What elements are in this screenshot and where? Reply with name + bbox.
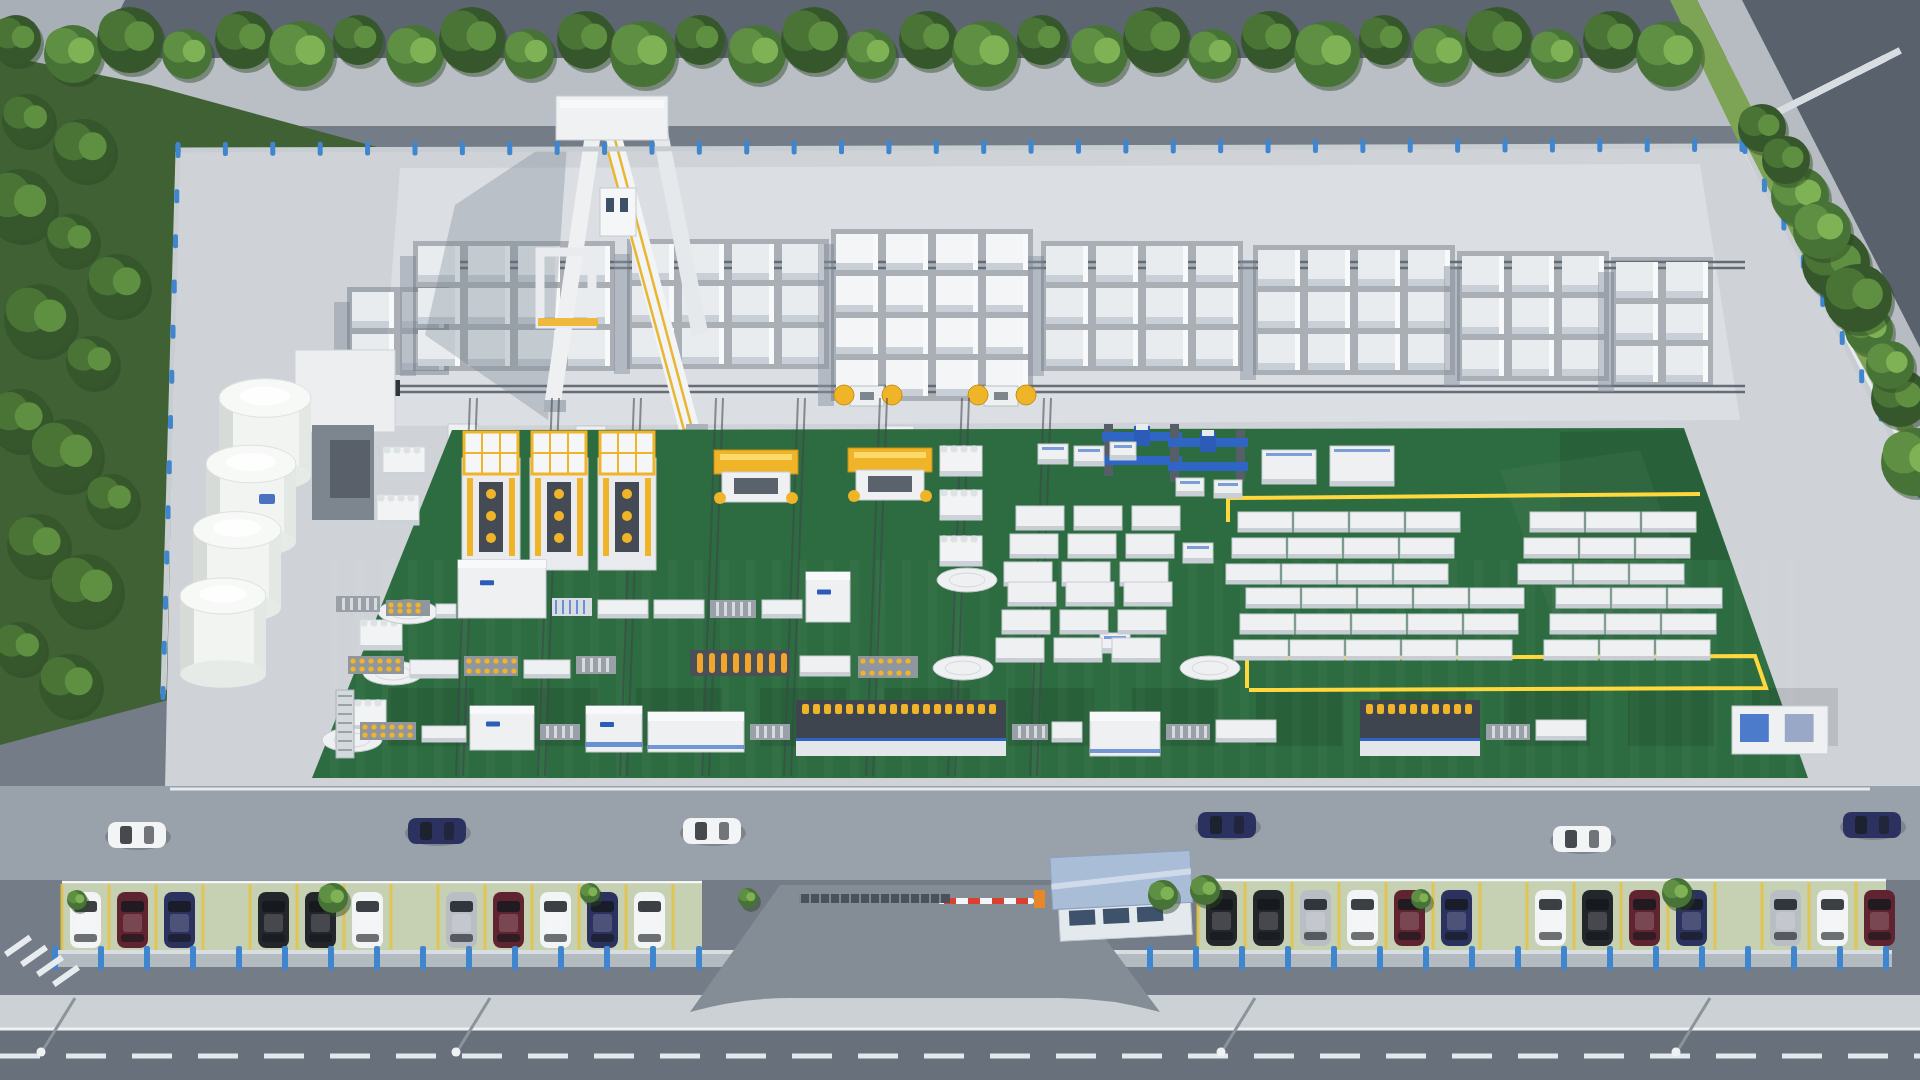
blue-stripe bbox=[1078, 449, 1100, 452]
aerated-cake bbox=[940, 490, 982, 521]
tree-canopy bbox=[239, 23, 265, 49]
arm-joint bbox=[848, 490, 860, 502]
tree-canopy bbox=[1663, 35, 1693, 65]
fence-post bbox=[1840, 331, 1845, 345]
fence-post bbox=[744, 141, 749, 155]
tree-canopy bbox=[466, 21, 496, 51]
car-glass bbox=[1565, 830, 1577, 848]
tree-canopy bbox=[1607, 23, 1633, 49]
roller-dot bbox=[887, 670, 892, 675]
roller-dot bbox=[371, 724, 376, 729]
parked-car bbox=[1629, 890, 1660, 946]
fence-post bbox=[144, 946, 150, 970]
cake-texture bbox=[941, 490, 948, 497]
arm-joint bbox=[920, 490, 932, 502]
block-pack-base bbox=[782, 315, 824, 322]
fence-post bbox=[172, 280, 177, 294]
car-windshield bbox=[121, 901, 144, 912]
top-roller bbox=[1410, 704, 1417, 714]
mould-box-base bbox=[1408, 630, 1462, 634]
parked-car bbox=[540, 892, 571, 948]
cake-texture bbox=[951, 446, 958, 453]
mould-box-base bbox=[1394, 580, 1448, 584]
roller-dot bbox=[407, 732, 412, 737]
fence-post bbox=[173, 234, 178, 248]
parked-car bbox=[1582, 890, 1613, 946]
mould-box-base bbox=[1338, 580, 1392, 584]
mould-box-base bbox=[1586, 528, 1640, 532]
block-pack-edge bbox=[1499, 340, 1504, 376]
lower-band bbox=[796, 740, 1006, 756]
roller-dot bbox=[475, 658, 480, 663]
tree-canopy bbox=[33, 527, 61, 555]
car-windshield bbox=[1539, 899, 1562, 910]
mould-box-base bbox=[1464, 630, 1518, 634]
cake-texture bbox=[388, 495, 395, 502]
roller-dot bbox=[493, 668, 498, 673]
fence-post bbox=[1883, 946, 1889, 970]
coil bbox=[757, 653, 763, 673]
parked-car bbox=[1535, 890, 1566, 946]
mould-box-base bbox=[1518, 580, 1572, 584]
block-pack-base bbox=[1146, 275, 1188, 282]
car-glass bbox=[144, 826, 154, 844]
block-pack-base bbox=[986, 305, 1028, 312]
fence-post bbox=[1423, 946, 1429, 970]
tree-canopy bbox=[1321, 35, 1351, 65]
silo-logo-mark bbox=[259, 494, 275, 504]
tree-canopy bbox=[75, 894, 84, 903]
tree-canopy bbox=[295, 35, 325, 65]
roller-dot bbox=[389, 732, 394, 737]
car-windshield bbox=[638, 901, 661, 912]
tree-canopy bbox=[88, 347, 111, 370]
tree-canopy bbox=[1852, 279, 1883, 310]
fence-post bbox=[1561, 946, 1567, 970]
tree-canopy bbox=[410, 37, 436, 63]
mould-box-base bbox=[1358, 604, 1412, 608]
table-base bbox=[654, 614, 704, 618]
tree-canopy bbox=[1674, 884, 1688, 898]
cutter-roll bbox=[486, 511, 496, 521]
roller bbox=[1524, 726, 1527, 738]
blue-panel bbox=[1740, 714, 1769, 742]
block-pack-edge bbox=[973, 318, 978, 354]
fence-post bbox=[602, 141, 607, 155]
conveyor-coilbank bbox=[690, 650, 790, 676]
roller bbox=[1180, 726, 1183, 738]
mould-box-base bbox=[1126, 554, 1174, 558]
cake-texture bbox=[941, 446, 948, 453]
block-pack-edge bbox=[1183, 288, 1188, 324]
table-base bbox=[1038, 459, 1068, 464]
roller-dot bbox=[475, 668, 480, 673]
roller-dot bbox=[896, 658, 901, 663]
car-windshield bbox=[497, 901, 520, 912]
conveyor-rollerY bbox=[386, 600, 430, 616]
block-stack-group bbox=[1240, 245, 1455, 380]
roller-dot bbox=[878, 670, 883, 675]
fence-post bbox=[328, 946, 334, 970]
canopy-highlight bbox=[720, 454, 792, 460]
table-base bbox=[436, 614, 456, 618]
parked-car bbox=[634, 892, 665, 948]
car-rear-window bbox=[1398, 932, 1421, 940]
block-pack-edge bbox=[1133, 288, 1138, 324]
tree-canopy bbox=[60, 434, 92, 466]
light-head bbox=[37, 1048, 46, 1057]
car-windshield bbox=[1257, 899, 1280, 910]
cutter-roll bbox=[554, 533, 564, 543]
mould-box-base bbox=[1124, 602, 1172, 606]
block-pack-base bbox=[568, 359, 610, 366]
mould-box-base bbox=[1612, 604, 1666, 608]
fence-post bbox=[1653, 946, 1659, 970]
white-table-machine bbox=[1074, 446, 1104, 466]
block-pack-edge bbox=[873, 318, 878, 354]
fence-post bbox=[507, 141, 512, 155]
conveyor-table bbox=[1536, 720, 1586, 740]
roller-dot bbox=[502, 658, 507, 663]
blue-stripe bbox=[796, 738, 1006, 741]
top-roller bbox=[1443, 704, 1450, 714]
car-rear-window bbox=[1304, 932, 1327, 940]
table-base bbox=[1183, 558, 1213, 563]
block-stack-group bbox=[1598, 257, 1713, 392]
block-pack-edge bbox=[1023, 276, 1028, 312]
roller-bed bbox=[360, 722, 416, 740]
block-pack-base bbox=[1358, 321, 1400, 328]
roller bbox=[740, 602, 743, 616]
parked-car bbox=[493, 892, 524, 948]
mould-box-base bbox=[1458, 656, 1512, 660]
roller-dot bbox=[905, 658, 910, 663]
fence-post bbox=[161, 686, 166, 700]
side-column bbox=[509, 478, 515, 556]
fence-post bbox=[604, 946, 610, 970]
blue-stripe bbox=[1334, 449, 1390, 452]
block-pack-edge bbox=[1083, 288, 1088, 324]
conveyor-machineW bbox=[648, 712, 744, 752]
fence-post bbox=[1515, 946, 1521, 970]
roller bbox=[1204, 726, 1207, 738]
tree-canopy bbox=[1038, 26, 1061, 49]
tree-canopy bbox=[1209, 40, 1232, 63]
block-pack-edge bbox=[923, 276, 928, 312]
crane-walkway-yellow bbox=[538, 318, 598, 326]
fence-post bbox=[365, 142, 370, 156]
block-pack-base bbox=[1616, 375, 1658, 382]
block-pack-edge bbox=[605, 330, 610, 366]
car-rear-window bbox=[309, 934, 332, 942]
roller bbox=[780, 726, 783, 738]
mould-box-base bbox=[1530, 528, 1584, 532]
fence-post bbox=[650, 946, 656, 970]
cake-texture bbox=[384, 447, 391, 454]
roller bbox=[716, 602, 719, 616]
block-pack-edge bbox=[1345, 250, 1350, 286]
mould-box-base bbox=[1636, 554, 1690, 558]
parked-car bbox=[1441, 890, 1472, 946]
roller bbox=[350, 598, 353, 610]
tree-canopy bbox=[1202, 881, 1216, 895]
block-pack-base bbox=[1358, 279, 1400, 286]
car-roof bbox=[1259, 912, 1278, 930]
block-pack-edge bbox=[769, 244, 774, 280]
fence-post bbox=[460, 141, 465, 155]
block-pack-base bbox=[782, 273, 824, 280]
mould-box-base bbox=[1668, 604, 1722, 608]
cake-base bbox=[940, 561, 982, 566]
top-roller bbox=[1454, 704, 1461, 714]
parked-car bbox=[1253, 890, 1284, 946]
car-rear-window bbox=[356, 934, 379, 942]
aerated-cake bbox=[383, 447, 425, 478]
cake-base bbox=[383, 472, 425, 477]
block-pack-edge bbox=[1653, 346, 1658, 382]
cutter-roll bbox=[554, 489, 564, 499]
block-pack-base bbox=[1666, 333, 1708, 340]
top-roller bbox=[835, 704, 842, 714]
roller-dot bbox=[362, 724, 367, 729]
car-glass bbox=[695, 822, 707, 840]
aerated-cake bbox=[940, 446, 982, 477]
block-pack-base bbox=[1408, 321, 1450, 328]
mould-box-base bbox=[1402, 656, 1456, 660]
block-pack-base bbox=[1462, 285, 1504, 292]
tree-canopy bbox=[68, 225, 91, 248]
blue-stripe bbox=[1180, 481, 1200, 484]
mould-box-base bbox=[1288, 554, 1342, 558]
aerated-cake bbox=[360, 620, 402, 651]
lower-band bbox=[1360, 740, 1480, 756]
roller-dot bbox=[869, 658, 874, 663]
barrier-stripe bbox=[968, 898, 980, 904]
fence-post bbox=[1745, 946, 1751, 970]
mould-box-base bbox=[1010, 554, 1058, 558]
parked-car bbox=[446, 892, 477, 948]
top-roller bbox=[879, 704, 886, 714]
tree-canopy bbox=[183, 40, 206, 63]
mould-box-base bbox=[1294, 528, 1348, 532]
car-rear-window bbox=[1351, 932, 1374, 940]
roller-dot bbox=[415, 608, 420, 613]
roller bbox=[1188, 726, 1191, 738]
conveyor-roller bbox=[710, 600, 756, 618]
block-pack-base bbox=[418, 359, 460, 366]
car-roof bbox=[311, 914, 330, 932]
roller bbox=[1172, 726, 1175, 738]
block-pack-base bbox=[1512, 369, 1554, 376]
fence-post bbox=[934, 140, 939, 154]
parked-car bbox=[258, 892, 289, 948]
cutting-machines bbox=[462, 432, 656, 570]
car-rear-window bbox=[1821, 932, 1844, 940]
car-windshield bbox=[1351, 899, 1374, 910]
table-base bbox=[1536, 736, 1586, 740]
blue-stripe bbox=[586, 742, 642, 747]
ferry-wheel bbox=[968, 385, 988, 405]
cutter-roll bbox=[622, 511, 632, 521]
block-pack-base bbox=[1146, 317, 1188, 324]
car-body bbox=[1553, 826, 1611, 852]
roller bbox=[1492, 726, 1495, 738]
mould-box-base bbox=[1580, 554, 1634, 558]
conveyor-roller bbox=[1486, 724, 1530, 740]
car-rear-window bbox=[1586, 932, 1609, 940]
fence-post bbox=[1607, 946, 1613, 970]
roller bbox=[598, 658, 601, 672]
block-pack-edge bbox=[1083, 246, 1088, 282]
fence-post bbox=[1147, 946, 1153, 970]
block-pack-base bbox=[836, 347, 878, 354]
mould-box-base bbox=[1556, 604, 1610, 608]
conveyor-table bbox=[1052, 722, 1082, 742]
roller-dot bbox=[386, 658, 391, 663]
top-roller bbox=[813, 704, 820, 714]
road-car bbox=[680, 818, 746, 846]
roller-dot bbox=[860, 658, 865, 663]
block-pack-edge bbox=[719, 244, 724, 280]
conveyor-roller bbox=[576, 656, 616, 674]
block-pack-base bbox=[1408, 279, 1450, 286]
tilting-crane bbox=[714, 450, 798, 504]
block-pack-base bbox=[936, 347, 978, 354]
roller bbox=[1034, 726, 1037, 738]
roller-dot bbox=[359, 666, 364, 671]
mould-box-base bbox=[1406, 528, 1460, 532]
coil bbox=[709, 653, 715, 673]
blue-stripe bbox=[648, 745, 744, 749]
fence-post bbox=[174, 189, 179, 203]
roller-dot bbox=[386, 666, 391, 671]
cake-base bbox=[377, 520, 419, 525]
top-roller bbox=[857, 704, 864, 714]
conveyor-table bbox=[410, 660, 458, 678]
car-roof bbox=[76, 914, 95, 932]
roller-dot bbox=[359, 658, 364, 663]
block-pack-base bbox=[1308, 321, 1350, 328]
conveyor-machineW bbox=[1090, 712, 1160, 756]
conveyor-rollerY bbox=[464, 656, 518, 676]
car-roof bbox=[546, 914, 565, 932]
aerated-cake bbox=[940, 536, 982, 567]
block-pack-base bbox=[1046, 275, 1088, 282]
fence-post bbox=[1239, 946, 1245, 970]
fence-post bbox=[166, 505, 171, 519]
light-head bbox=[1672, 1048, 1681, 1057]
car-rear-window bbox=[1868, 932, 1891, 940]
roller-dot bbox=[466, 658, 471, 663]
silo-dome bbox=[213, 519, 261, 537]
car-rear-window bbox=[544, 934, 567, 942]
mould-box-base bbox=[1662, 630, 1716, 634]
car-windshield bbox=[356, 901, 379, 912]
fence-post bbox=[270, 142, 275, 156]
fence-post bbox=[162, 641, 167, 655]
top-roller bbox=[901, 704, 908, 714]
tree-canopy bbox=[808, 21, 838, 51]
mould-box-base bbox=[1234, 656, 1288, 660]
fence-post bbox=[792, 140, 797, 154]
car-roof bbox=[1635, 912, 1654, 930]
mould-box-base bbox=[1226, 580, 1280, 584]
block-pack-base bbox=[1308, 363, 1350, 370]
side-column bbox=[645, 478, 651, 556]
table-base bbox=[598, 614, 648, 618]
block-pack-edge bbox=[873, 234, 878, 270]
block-pack-base bbox=[1562, 369, 1604, 376]
road-car bbox=[1195, 812, 1261, 840]
cutter-roll bbox=[486, 489, 496, 499]
roller-dot bbox=[860, 670, 865, 675]
mould-box-base bbox=[1054, 658, 1102, 662]
roller-dot bbox=[368, 658, 373, 663]
car-rear-window bbox=[1774, 932, 1797, 940]
mould-box-base bbox=[1282, 580, 1336, 584]
mould-box-base bbox=[1656, 656, 1710, 660]
roller bbox=[756, 726, 759, 738]
roller bbox=[342, 598, 345, 610]
fence-post bbox=[169, 370, 174, 384]
fence-post bbox=[1645, 138, 1650, 152]
block-pack-base bbox=[1462, 369, 1504, 376]
mould-box-base bbox=[1074, 526, 1122, 530]
conveyor-roller bbox=[540, 724, 580, 740]
car-rear-window bbox=[1210, 932, 1233, 940]
car-roof bbox=[1870, 912, 1889, 930]
block-pack-edge bbox=[1395, 250, 1400, 286]
mould-box-base bbox=[1238, 528, 1292, 532]
cabinet-roof bbox=[586, 706, 642, 714]
conveyor-machineB bbox=[1732, 706, 1828, 754]
top-roller bbox=[1465, 704, 1472, 714]
cake-texture bbox=[404, 447, 411, 454]
conveyor-roller bbox=[336, 596, 380, 612]
tree-canopy bbox=[746, 892, 755, 901]
roller bbox=[374, 598, 377, 610]
coil bbox=[733, 653, 739, 673]
tree-canopy bbox=[24, 105, 47, 128]
block-pack-edge bbox=[1295, 334, 1300, 370]
block-pack-base bbox=[1562, 285, 1604, 292]
car-windshield bbox=[1586, 899, 1609, 910]
mould-box-base bbox=[1470, 604, 1524, 608]
car-windshield bbox=[262, 901, 285, 912]
tree-canopy bbox=[752, 37, 778, 63]
mould-box-base bbox=[1600, 656, 1654, 660]
roller bbox=[358, 598, 361, 610]
roller-dot bbox=[511, 658, 516, 663]
cutter-roll bbox=[486, 533, 496, 543]
roller-dot bbox=[502, 668, 507, 673]
roller-dot bbox=[869, 670, 874, 675]
top-roller bbox=[1377, 704, 1384, 714]
car-roof bbox=[1353, 912, 1372, 930]
block-stack-group bbox=[1028, 241, 1243, 376]
factory-aerial-render bbox=[0, 0, 1920, 1080]
cradle bbox=[734, 478, 778, 494]
sliding-gate bbox=[800, 894, 950, 903]
conveyor-cabinet bbox=[470, 706, 534, 750]
car-windshield bbox=[1821, 899, 1844, 910]
block-pack-base bbox=[732, 315, 774, 322]
white-table-machine bbox=[1110, 442, 1136, 460]
roller-dot bbox=[415, 602, 420, 607]
cake-texture bbox=[414, 447, 421, 454]
mould-box-base bbox=[1118, 630, 1166, 634]
conveyor-cabinet bbox=[458, 560, 546, 618]
